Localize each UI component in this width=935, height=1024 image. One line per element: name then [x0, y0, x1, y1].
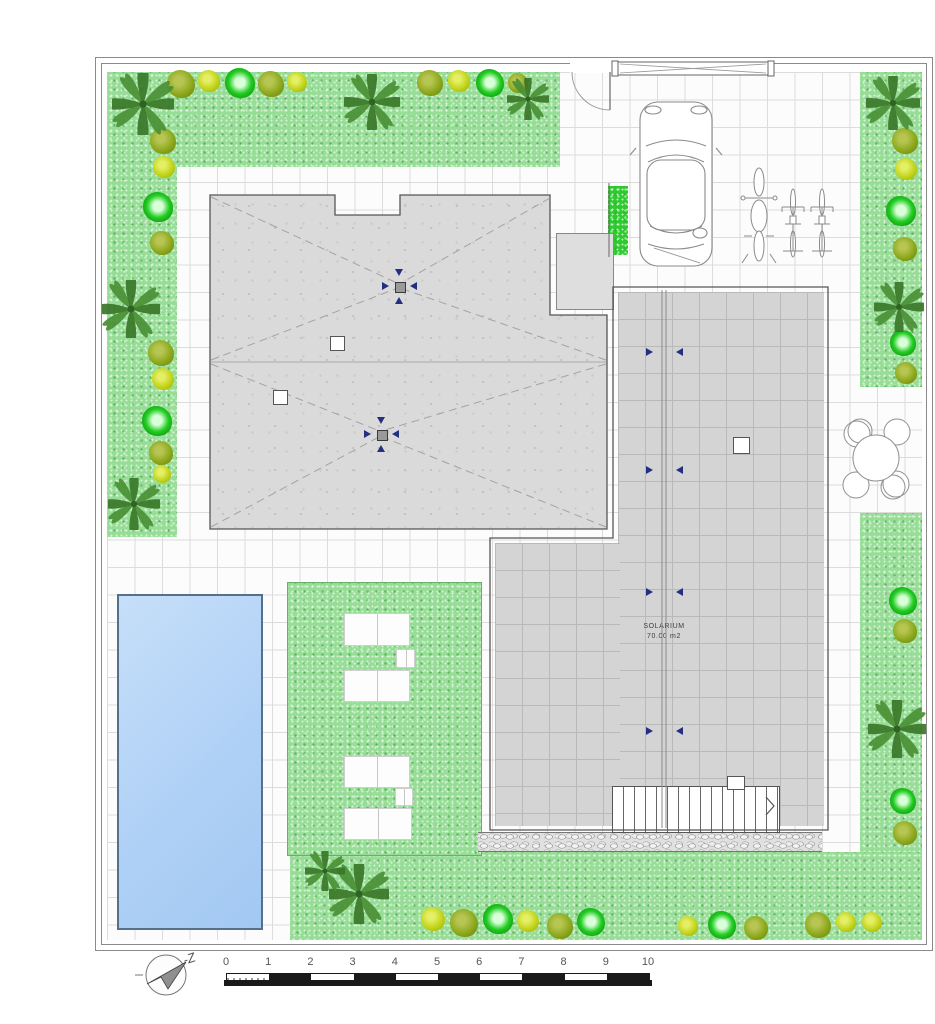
bush-icon: [143, 192, 173, 222]
bush-icon: [450, 909, 478, 937]
bush-icon: [678, 916, 698, 936]
scale-number: 6: [476, 956, 482, 968]
bush-icon: [150, 231, 174, 255]
bush-icon: [895, 158, 917, 180]
bush-icon: [142, 406, 172, 436]
house-roof: [210, 195, 607, 529]
bush-icon: [744, 916, 768, 940]
drain-arrow-icon: [382, 282, 389, 290]
roof-vent: [330, 336, 345, 351]
palm-tree-icon: [874, 282, 924, 332]
drain-arrow-icon: [395, 297, 403, 304]
solarium-vent: [733, 437, 750, 454]
scale-number: 3: [350, 956, 356, 968]
scale-number: 10: [642, 956, 654, 968]
drain-arrow-icon: [377, 417, 385, 424]
bush-icon: [517, 910, 539, 932]
bush-icon: [862, 912, 882, 932]
bush-icon: [892, 128, 918, 154]
slope-arrow-icon: [676, 588, 683, 596]
scale-number: 2: [307, 956, 313, 968]
bush-icon: [417, 70, 443, 96]
roof-drain: [395, 282, 406, 293]
bush-icon: [577, 908, 605, 936]
palm-tree-icon: [866, 76, 920, 130]
solarium-terrace-extension: [495, 543, 620, 826]
stairs: [612, 786, 780, 833]
scale-number: 4: [392, 956, 398, 968]
slope-arrow-icon: [646, 466, 653, 474]
bush-icon: [890, 330, 916, 356]
bush-icon: [152, 368, 174, 390]
palm-tree-icon: [868, 700, 926, 758]
scale-number: 8: [561, 956, 567, 968]
sun-lounger: [344, 613, 410, 646]
roof-vent: [273, 390, 288, 405]
bush-icon: [889, 587, 917, 615]
scale-number: 7: [518, 956, 524, 968]
bush-icon: [708, 911, 736, 939]
bush-icon: [893, 821, 917, 845]
palm-tree-icon: [102, 280, 160, 338]
slope-arrow-icon: [676, 727, 683, 735]
sun-lounger: [344, 670, 410, 702]
bush-icon: [149, 441, 173, 465]
palm-tree-icon: [108, 478, 160, 530]
bush-icon: [148, 340, 174, 366]
bush-icon: [483, 904, 513, 934]
gravel-strip: [478, 832, 822, 852]
scale-bar-base: [224, 980, 652, 986]
bush-icon: [448, 70, 470, 92]
sun-lounger: [395, 788, 413, 806]
bush-icon: [547, 913, 573, 939]
scale-number: 5: [434, 956, 440, 968]
bush-icon: [890, 788, 916, 814]
swimming-pool: [117, 594, 263, 930]
bush-icon: [805, 912, 831, 938]
palm-tree-icon: [507, 78, 549, 120]
slope-arrow-icon: [676, 348, 683, 356]
compass-label: -Z: [181, 949, 197, 967]
scale-bar: 012345678910: [226, 956, 650, 990]
scale-bar-numbers: 012345678910: [226, 956, 650, 970]
solarium-terrace: [618, 292, 824, 826]
drain-arrow-icon: [392, 430, 399, 438]
scale-number: 0: [223, 956, 229, 968]
solarium-area: 70.00 m2: [626, 632, 702, 642]
bush-icon: [421, 907, 445, 931]
bush-icon: [895, 362, 917, 384]
bush-icon: [893, 619, 917, 643]
sun-lounger: [344, 808, 412, 840]
bush-icon: [153, 156, 175, 178]
drain-arrow-icon: [364, 430, 371, 438]
bush-icon: [198, 70, 220, 92]
sun-lounger: [396, 649, 415, 668]
porch-roof: [556, 233, 614, 310]
site-plan-canvas: SOLARIUM 70.00 m2: [0, 0, 935, 1024]
scale-number: 1: [265, 956, 271, 968]
solarium-name: SOLARIUM: [626, 622, 702, 632]
roof-drain: [377, 430, 388, 441]
palm-tree-icon: [112, 73, 174, 135]
bush-icon: [836, 912, 856, 932]
drain-arrow-icon: [377, 445, 385, 452]
bush-icon: [258, 71, 284, 97]
north-arrow-icon: [135, 955, 186, 995]
palm-tree-icon: [305, 851, 345, 891]
drain-arrow-icon: [410, 282, 417, 290]
scale-number: 9: [603, 956, 609, 968]
sun-lounger: [344, 756, 410, 788]
bush-icon: [287, 72, 307, 92]
bush-icon: [886, 196, 916, 226]
stairs-post: [727, 776, 745, 790]
palm-tree-icon: [344, 74, 400, 130]
slope-arrow-icon: [676, 466, 683, 474]
bush-icon: [476, 69, 504, 97]
bush-icon: [893, 237, 917, 261]
slope-arrow-icon: [646, 588, 653, 596]
bush-icon: [225, 68, 255, 98]
slope-arrow-icon: [646, 348, 653, 356]
solarium-label: SOLARIUM 70.00 m2: [626, 622, 702, 642]
slope-arrow-icon: [646, 727, 653, 735]
drain-arrow-icon: [395, 269, 403, 276]
